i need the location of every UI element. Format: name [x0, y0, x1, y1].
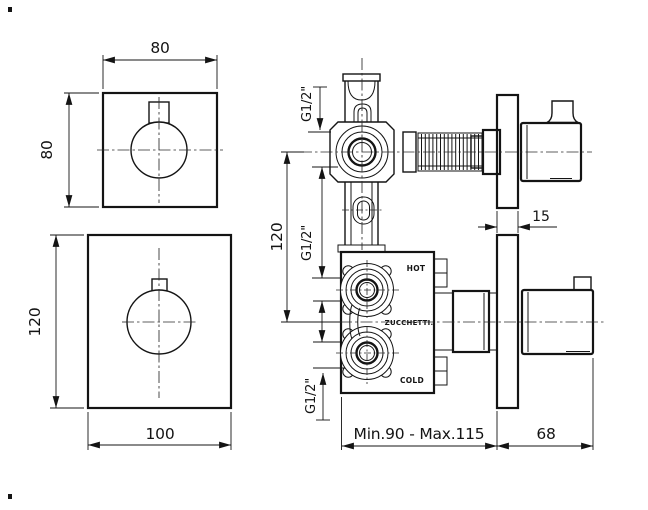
svg-text:120: 120	[268, 223, 286, 252]
cold-side-fitting	[434, 357, 447, 385]
dimensions: 80 80 120 100 120	[26, 39, 593, 450]
dim-small-plate-height: 80	[38, 93, 99, 207]
svg-text:G1/2": G1/2"	[304, 378, 319, 414]
svg-text:80: 80	[38, 140, 56, 159]
svg-text:G1/2": G1/2"	[300, 225, 315, 261]
dim-thread-hot: G1/2"	[300, 167, 342, 278]
brand-label: ZUCCHETTI.	[385, 319, 434, 327]
dim-large-plate-height: 120	[26, 235, 84, 408]
hot-label: HOT	[407, 264, 426, 273]
page-corner-marks	[8, 7, 12, 499]
hot-side-fitting	[434, 259, 447, 287]
view-outlet-side	[471, 95, 581, 208]
svg-text:120: 120	[26, 308, 44, 337]
view-large-plate-front	[88, 235, 231, 408]
thermostat-wall-plate	[497, 235, 518, 408]
cartridge-spindle	[434, 291, 489, 352]
dim-plate-thickness: 15	[478, 209, 557, 233]
dim-thread-cold: G1/2"	[304, 368, 345, 420]
valve-riser-bar	[338, 182, 385, 252]
dim-port-gap	[313, 301, 342, 342]
view-thermostat-side	[489, 235, 593, 408]
technical-drawing-sheet: HOT ZUCCHETTI. COLD	[0, 0, 648, 510]
dim-small-plate-width: 80	[103, 39, 217, 89]
svg-text:68: 68	[536, 425, 555, 443]
thermostat-handle-tab	[574, 277, 591, 290]
cold-label: COLD	[400, 376, 424, 385]
outlet-handle-tab	[547, 101, 578, 123]
spindle-through-wall	[489, 293, 497, 350]
dim-recess-depth: Min.90 - Max.115	[342, 397, 498, 450]
mixer-installation-drawing: HOT ZUCCHETTI. COLD	[0, 0, 648, 510]
valve-body: HOT ZUCCHETTI. COLD	[341, 252, 490, 393]
svg-text:G1/2": G1/2"	[300, 86, 315, 122]
svg-text:15: 15	[532, 209, 550, 225]
dim-large-plate-width: 100	[88, 412, 231, 450]
view-valve-body-front: HOT ZUCCHETTI. COLD	[330, 74, 500, 393]
dim-thread-outlet: G1/2"	[300, 86, 331, 132]
svg-text:Min.90 - Max.115: Min.90 - Max.115	[354, 425, 485, 443]
svg-text:80: 80	[150, 39, 169, 57]
dim-handle-projection: 68	[497, 358, 593, 450]
svg-text:100: 100	[146, 425, 175, 443]
